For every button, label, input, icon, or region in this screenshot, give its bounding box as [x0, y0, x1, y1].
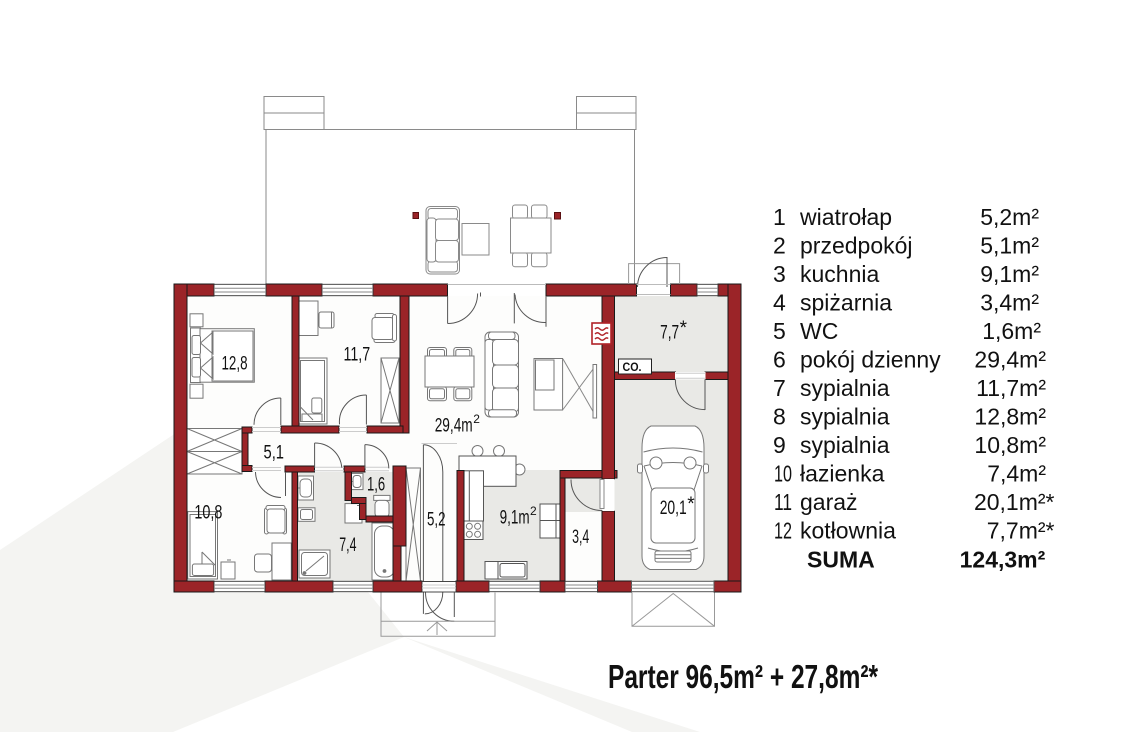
svg-text:7,7: 7,7: [660, 323, 679, 344]
svg-text:9,1m²: 9,1m²: [980, 261, 1039, 287]
svg-text:Parter 96,5m² + 27,8m²*: Parter 96,5m² + 27,8m²*: [608, 658, 878, 695]
svg-text:5: 5: [773, 318, 786, 344]
svg-text:4: 4: [773, 290, 786, 316]
svg-text:5,2: 5,2: [427, 510, 446, 531]
svg-text:3,4: 3,4: [572, 527, 589, 548]
svg-text:12,8m²: 12,8m²: [974, 404, 1046, 430]
svg-text:1,6: 1,6: [367, 475, 385, 496]
svg-text:CO.: CO.: [623, 360, 642, 374]
svg-text:5,1: 5,1: [264, 443, 285, 464]
svg-text:sypialnia: sypialnia: [800, 432, 890, 458]
svg-text:9,1m: 9,1m: [500, 507, 530, 528]
svg-text:garaż: garaż: [800, 489, 858, 515]
svg-text:7: 7: [773, 375, 786, 401]
svg-text:124,3m²: 124,3m²: [960, 547, 1046, 573]
svg-text:wiatrołap: wiatrołap: [799, 204, 892, 230]
svg-text:6: 6: [773, 347, 786, 373]
svg-text:29,4m: 29,4m: [435, 415, 473, 436]
svg-text:12: 12: [774, 518, 792, 544]
svg-text:29,4m²: 29,4m²: [974, 347, 1046, 373]
svg-text:7,4: 7,4: [339, 535, 356, 556]
svg-text:*: *: [680, 318, 688, 339]
svg-text:1: 1: [773, 204, 786, 230]
svg-text:20,1: 20,1: [660, 498, 687, 519]
svg-text:11,7: 11,7: [344, 344, 371, 365]
svg-text:7,4m²: 7,4m²: [987, 461, 1046, 487]
svg-text:11,7m²: 11,7m²: [976, 375, 1046, 401]
svg-text:1,6m²: 1,6m²: [982, 318, 1041, 344]
svg-text:pokój dzienny: pokój dzienny: [800, 347, 941, 373]
svg-text:3,4m²: 3,4m²: [980, 290, 1039, 316]
svg-text:7,7m²*: 7,7m²*: [987, 518, 1055, 544]
svg-text:10,8m²: 10,8m²: [974, 432, 1046, 458]
svg-text:kotłownia: kotłownia: [800, 518, 896, 544]
svg-text:3: 3: [773, 261, 786, 287]
svg-text:20,1m²*: 20,1m²*: [974, 489, 1055, 515]
svg-text:5,2m²: 5,2m²: [980, 204, 1039, 230]
svg-text:10,8: 10,8: [194, 503, 222, 524]
svg-text:SUMA: SUMA: [807, 547, 875, 573]
svg-text:sypialnia: sypialnia: [800, 375, 890, 401]
svg-text:kuchnia: kuchnia: [800, 261, 879, 287]
svg-text:sypialnia: sypialnia: [800, 404, 890, 430]
svg-text:10: 10: [774, 461, 792, 487]
svg-text:2: 2: [530, 504, 537, 518]
svg-text:2: 2: [473, 412, 480, 426]
svg-text:9: 9: [773, 432, 786, 458]
svg-text:WC: WC: [800, 318, 838, 344]
svg-text:11: 11: [774, 489, 792, 515]
svg-text:przedpokój: przedpokój: [800, 233, 913, 259]
svg-text:8: 8: [773, 404, 786, 430]
svg-text:2: 2: [773, 233, 786, 259]
svg-text:spiżarnia: spiżarnia: [800, 290, 892, 316]
svg-text:*: *: [687, 494, 695, 515]
svg-text:5,1m²: 5,1m²: [980, 233, 1039, 259]
svg-text:łazienka: łazienka: [800, 461, 885, 487]
svg-text:12,8: 12,8: [222, 353, 248, 374]
